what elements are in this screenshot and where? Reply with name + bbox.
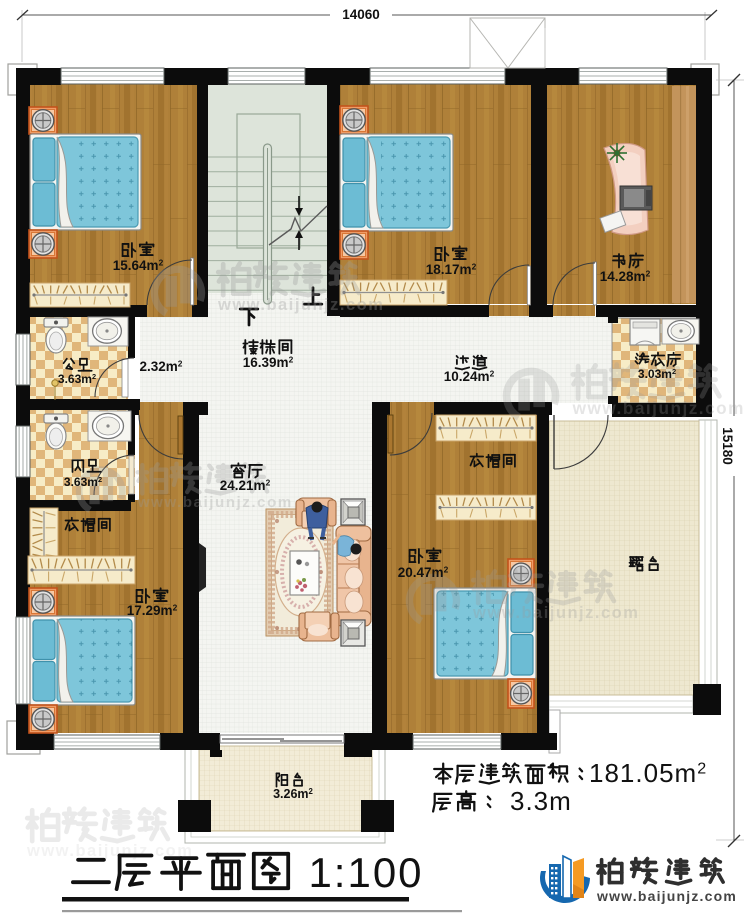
svg-text:www.baijunjz.com: www.baijunjz.com [572,398,745,418]
svg-text:3.63m2: 3.63m2 [64,475,102,489]
svg-text:24.21m2: 24.21m2 [220,478,271,493]
svg-text:www.baijunjz.com: www.baijunjz.com [472,604,639,622]
svg-text:3.03m2: 3.03m2 [638,367,676,381]
svg-text:www.baijunjz.com: www.baijunjz.com [217,296,384,314]
svg-text:3.63m2: 3.63m2 [58,372,96,386]
svg-text:www.baijunjz.com: www.baijunjz.com [596,888,737,904]
svg-text:2.32m2: 2.32m2 [140,359,183,374]
svg-text:20.47m2: 20.47m2 [398,565,449,580]
svg-text:15.64m2: 15.64m2 [113,258,164,273]
svg-text:3.3m: 3.3m [510,786,572,816]
svg-text:10.24m2: 10.24m2 [444,369,495,384]
svg-text:18.17m2: 18.17m2 [426,262,477,277]
svg-text:17.29m2: 17.29m2 [127,603,178,618]
svg-text:3.26m2: 3.26m2 [273,787,313,801]
svg-text:16.39m2: 16.39m2 [243,355,294,370]
svg-text:181.05m2: 181.05m2 [589,758,707,788]
svg-text:www.baijunjz.com: www.baijunjz.com [137,494,293,511]
svg-text:14.28m2: 14.28m2 [600,269,651,284]
svg-text:14060: 14060 [342,7,380,22]
svg-text:1:100: 1:100 [308,849,423,896]
svg-text:15180: 15180 [720,427,735,465]
